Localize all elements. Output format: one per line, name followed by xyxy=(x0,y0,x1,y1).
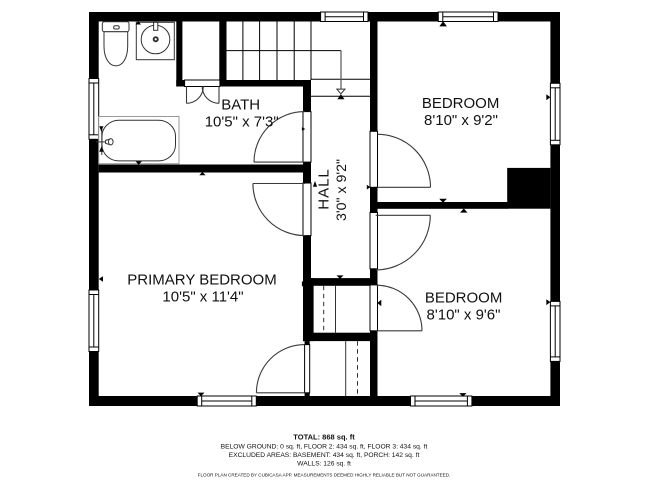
svg-text:BEDROOM: BEDROOM xyxy=(425,290,503,307)
svg-text:BEDROOM: BEDROOM xyxy=(422,95,500,112)
svg-text:PRIMARY BEDROOM: PRIMARY BEDROOM xyxy=(127,272,276,289)
svg-text:8'10" x 9'6": 8'10" x 9'6" xyxy=(427,307,501,324)
svg-text:BELOW GROUND: 0 sq. ft, FLOOR: BELOW GROUND: 0 sq. ft, FLOOR 2: 434 sq.… xyxy=(221,443,428,450)
svg-text:HALL: HALL xyxy=(316,168,333,210)
svg-text:FLOOR PLAN CREATED BY CUBICASA: FLOOR PLAN CREATED BY CUBICASA APP. MEAS… xyxy=(198,472,451,477)
svg-text:TOTAL: 868 sq. ft: TOTAL: 868 sq. ft xyxy=(293,433,355,442)
svg-text:10'5" x 11'4": 10'5" x 11'4" xyxy=(162,289,243,306)
svg-text:10'5" x 7'3": 10'5" x 7'3" xyxy=(205,114,279,131)
svg-text:BATH: BATH xyxy=(221,96,260,113)
svg-text:WALLS: 126 sq. ft: WALLS: 126 sq. ft xyxy=(297,461,351,468)
svg-text:8'10" x 9'2": 8'10" x 9'2" xyxy=(424,112,498,129)
svg-text:EXCLUDED AREAS: BASEMENT: 434: EXCLUDED AREAS: BASEMENT: 434 sq. ft, PO… xyxy=(229,452,420,459)
svg-text:3'0" x 9'2": 3'0" x 9'2" xyxy=(334,159,350,221)
